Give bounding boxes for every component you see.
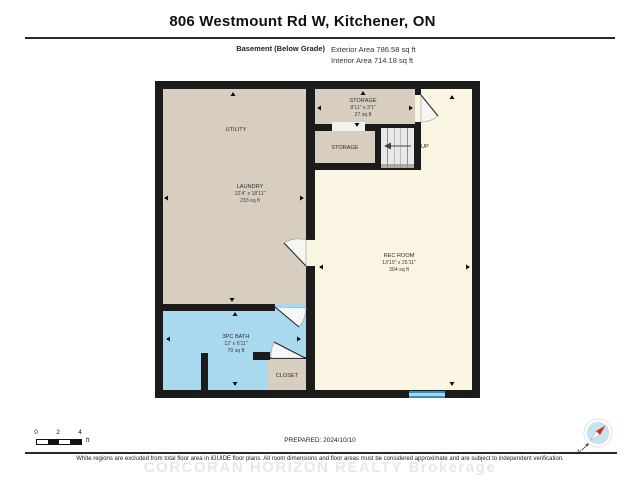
floorplan-drawing: UTILITY LAUNDRY 12'4" x 18'11" 233 sq ft… — [155, 81, 480, 398]
door-opening-storage-rec — [415, 95, 421, 122]
prepared-date: PREPARED: 2024/10/10 — [0, 437, 640, 444]
label-bath-dims: 12' x 6'11" — [224, 341, 247, 347]
page-title: 806 Westmount Rd W, Kitchener, ON — [0, 13, 605, 30]
label-storage-upper-name: STORAGE — [349, 98, 377, 104]
exterior-area: Exterior Area 786.58 sq ft — [331, 44, 416, 55]
label-utility: UTILITY — [226, 127, 247, 133]
floor-label: Basement (Below Grade) — [160, 44, 325, 53]
label-rec-name: REC ROOM — [384, 253, 415, 259]
label-bath-area: 70 sq ft — [227, 348, 245, 354]
label-laundry-dims: 12'4" x 18'11" — [235, 191, 266, 197]
label-rec-area: 304 sq ft — [389, 267, 409, 273]
label-laundry-name: LAUNDRY — [237, 184, 264, 190]
room-rec-upper — [421, 89, 472, 170]
label-laundry-area: 233 sq ft — [240, 198, 260, 204]
bath-closet-wall — [253, 352, 270, 360]
label-storage-upper-dims: 8'11" x 3'1" — [350, 105, 375, 111]
label-stairs-up: UP — [421, 144, 429, 150]
scale-tick-4: 4 — [78, 429, 82, 436]
disclaimer-text: White regions are excluded from total fl… — [0, 456, 640, 462]
area-summary: Exterior Area 786.58 sq ft Interior Area… — [331, 44, 416, 66]
header-divider — [25, 37, 615, 39]
stairs — [381, 128, 414, 168]
interior-area: Interior Area 714.18 sq ft — [331, 55, 416, 66]
storage-passage-opening — [332, 122, 365, 132]
window — [409, 391, 445, 398]
label-rec-dims: 13'10" x 25'11" — [382, 260, 416, 266]
room-rec-main — [315, 170, 472, 390]
scale-tick-2: 2 — [56, 429, 60, 436]
label-storage-lower: STORAGE — [331, 145, 359, 151]
floorplan-page: 806 Westmount Rd W, Kitchener, ON Baseme… — [0, 0, 640, 494]
scale-tick-0: 0 — [34, 429, 38, 436]
label-bath-name: 3PC BATH — [223, 334, 250, 340]
label-closet: CLOSET — [276, 373, 299, 379]
door-opening-laundry-rec — [306, 240, 315, 266]
label-storage-upper-area: 27 sq ft — [354, 112, 372, 118]
bath-stub-wall — [201, 353, 208, 390]
footer-divider — [25, 452, 617, 454]
